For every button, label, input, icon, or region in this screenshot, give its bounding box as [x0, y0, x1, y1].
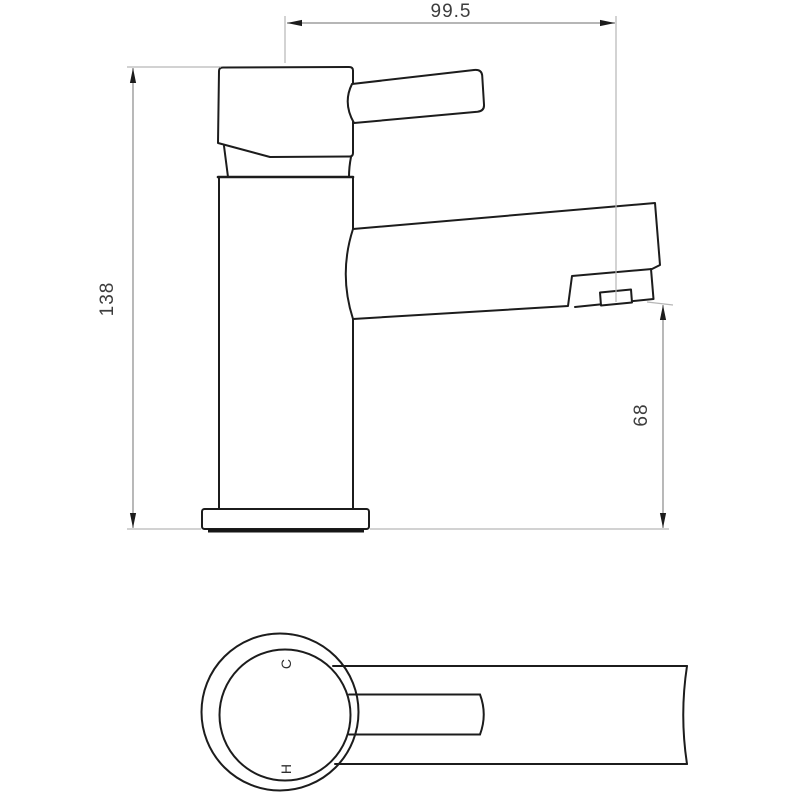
hot-indicator-label: H	[278, 764, 294, 774]
arrow-left	[287, 20, 302, 26]
neck-right-edge	[349, 157, 351, 177]
base-flange	[202, 509, 369, 531]
arrow-top	[130, 68, 136, 83]
dimension-value-overall-height: 138	[97, 282, 118, 317]
side-elevation-view	[202, 67, 660, 531]
tap-body-column	[218, 177, 353, 511]
drawing-sheet: 99.5 138 68	[0, 0, 800, 800]
tap-technical-drawing: 99.5 138 68	[0, 0, 800, 800]
handle-lever-outline	[348, 70, 484, 123]
base-flange-outline	[202, 509, 369, 529]
arrow-bottom	[130, 513, 136, 528]
plan-view: C H	[202, 634, 688, 791]
cold-indicator-label: C	[278, 659, 294, 669]
arrow-top	[660, 305, 666, 320]
dimension-overall-height: 138	[97, 67, 221, 528]
plan-handle	[349, 695, 484, 735]
plan-spout	[333, 666, 687, 764]
arrow-right	[600, 20, 615, 26]
plan-handle-end-arc	[480, 695, 484, 735]
extension-line-outlet	[647, 302, 673, 305]
neck-left-edge	[224, 146, 228, 177]
dimension-value-spout-reach: 99.5	[431, 1, 472, 22]
head-block-outline	[218, 67, 353, 157]
dimension-value-outlet-height: 68	[631, 403, 652, 426]
plan-spout-end-arc	[683, 666, 687, 764]
spout	[346, 203, 660, 319]
arrow-bottom	[660, 513, 666, 528]
dimension-outlet-height: 68	[631, 302, 673, 528]
